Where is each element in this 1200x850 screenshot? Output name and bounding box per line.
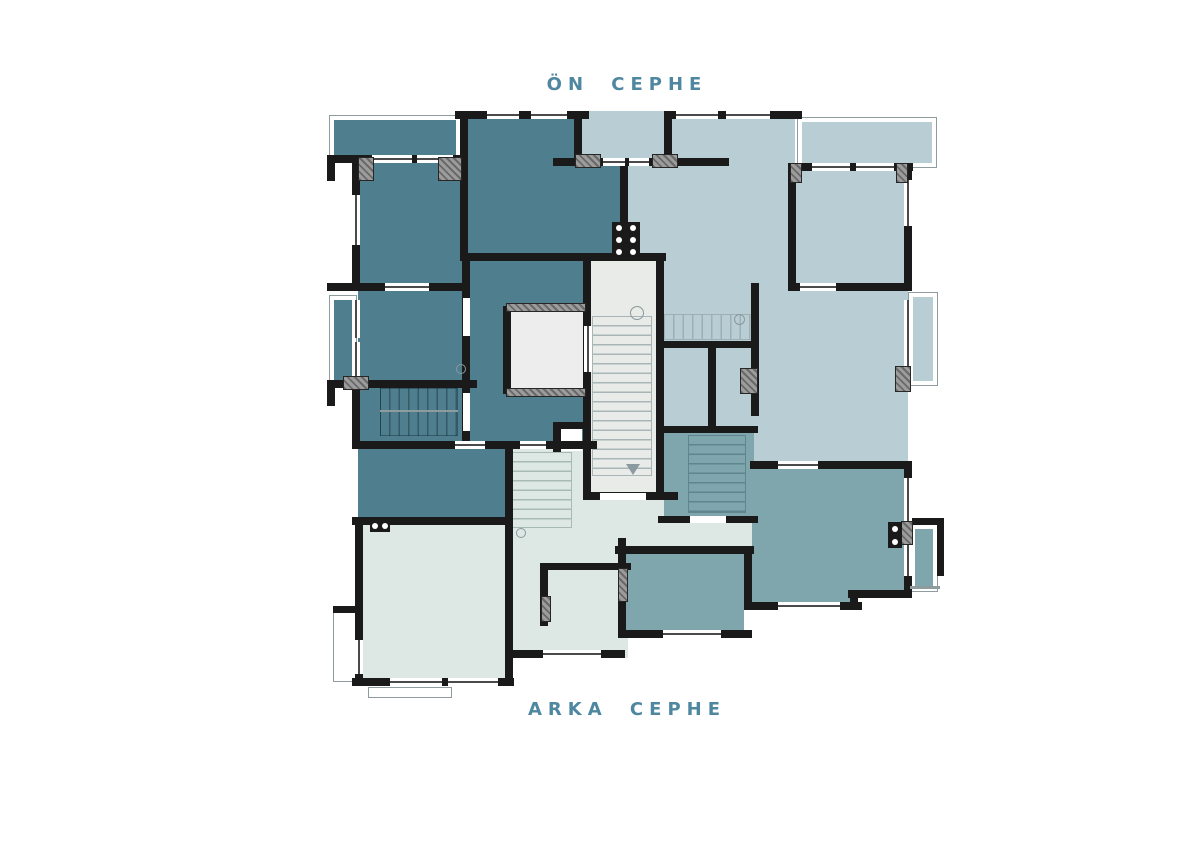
room — [358, 291, 470, 387]
stair-arrow-symbol — [626, 464, 640, 475]
balcony — [368, 687, 452, 698]
balcony-edge-line — [380, 410, 458, 412]
door-jamb — [506, 303, 586, 312]
stair-circle-symbol — [516, 528, 526, 538]
window — [352, 300, 360, 338]
staircase — [512, 452, 572, 528]
wall-segment — [615, 546, 754, 554]
window — [584, 326, 592, 372]
balcony — [797, 117, 937, 168]
room — [622, 553, 748, 633]
staircase — [592, 316, 652, 476]
balcony — [908, 292, 938, 386]
window — [455, 441, 485, 449]
wall-segment — [744, 546, 752, 610]
window — [520, 441, 546, 449]
window — [355, 640, 363, 674]
window — [812, 163, 850, 171]
shaft-dot — [892, 526, 898, 532]
wall-segment — [327, 380, 335, 406]
stair-circle-symbol — [630, 306, 644, 320]
back-facade-label: ARKA CEPHE — [427, 699, 827, 720]
floor-plan — [0, 0, 1200, 850]
window — [372, 155, 412, 163]
shaft-dot — [616, 249, 622, 255]
door-jamb — [575, 154, 601, 168]
room — [358, 449, 509, 526]
door-opening — [463, 393, 470, 431]
door-jamb — [343, 376, 369, 390]
door-jamb — [438, 157, 462, 181]
wall-segment — [460, 111, 468, 261]
window — [676, 111, 718, 119]
balcony — [910, 524, 938, 592]
floor-plan-page: ÖN CEPHE ARKA CEPHE — [0, 0, 1200, 850]
door-jamb — [652, 154, 678, 168]
wall-segment — [352, 380, 360, 449]
wall-segment — [505, 441, 513, 686]
wall-segment — [656, 253, 664, 500]
door-jamb — [740, 368, 758, 394]
room — [360, 524, 510, 682]
window — [352, 195, 360, 245]
wall-segment — [937, 518, 944, 576]
room — [627, 111, 795, 261]
door-jamb — [790, 163, 802, 183]
wall-segment — [583, 253, 591, 500]
window — [531, 111, 567, 119]
window — [487, 111, 519, 119]
shaft-dot — [892, 539, 898, 545]
shaft-dot — [382, 523, 388, 529]
door-jamb — [506, 388, 586, 397]
window — [385, 283, 429, 291]
door-opening — [600, 493, 646, 500]
wall-segment — [850, 590, 858, 610]
wall-segment — [553, 424, 561, 452]
shaft-dot — [616, 237, 622, 243]
door-opening — [744, 610, 752, 630]
window — [603, 158, 625, 166]
wall-segment — [751, 283, 759, 416]
wall-segment — [327, 155, 335, 181]
door-jamb — [358, 157, 374, 181]
window — [856, 163, 894, 171]
shaft-symbol — [612, 222, 640, 258]
door-jamb — [618, 568, 628, 602]
shaft-symbol — [370, 520, 390, 532]
wall-segment — [708, 341, 716, 433]
door-jamb — [896, 163, 908, 183]
wall-segment — [503, 306, 511, 394]
shaft-dot — [616, 225, 622, 231]
wall-segment — [750, 461, 912, 469]
shaft-dot — [630, 225, 636, 231]
window — [778, 602, 840, 610]
window — [778, 461, 818, 469]
shaft-dot — [372, 523, 378, 529]
shaft-symbol — [888, 522, 902, 548]
stair-circle-symbol — [456, 364, 466, 374]
wall-segment — [455, 111, 589, 119]
window — [663, 630, 721, 638]
balcony-edge-line — [910, 586, 940, 589]
window — [352, 342, 360, 378]
window — [390, 678, 442, 686]
staircase — [688, 435, 746, 513]
door-opening — [463, 298, 470, 336]
shaft-dot — [630, 249, 636, 255]
window — [629, 158, 649, 166]
door-jamb — [895, 366, 911, 392]
shaft-dot — [630, 237, 636, 243]
window — [904, 180, 912, 226]
stair-circle-symbol — [734, 314, 745, 325]
door-opening — [690, 516, 726, 523]
room — [508, 311, 586, 389]
window — [800, 283, 836, 291]
window — [543, 650, 601, 658]
window — [904, 478, 912, 526]
window — [726, 111, 770, 119]
door-jamb — [901, 521, 913, 545]
staircase — [380, 388, 458, 436]
window — [448, 678, 498, 686]
door-jamb — [541, 596, 551, 622]
